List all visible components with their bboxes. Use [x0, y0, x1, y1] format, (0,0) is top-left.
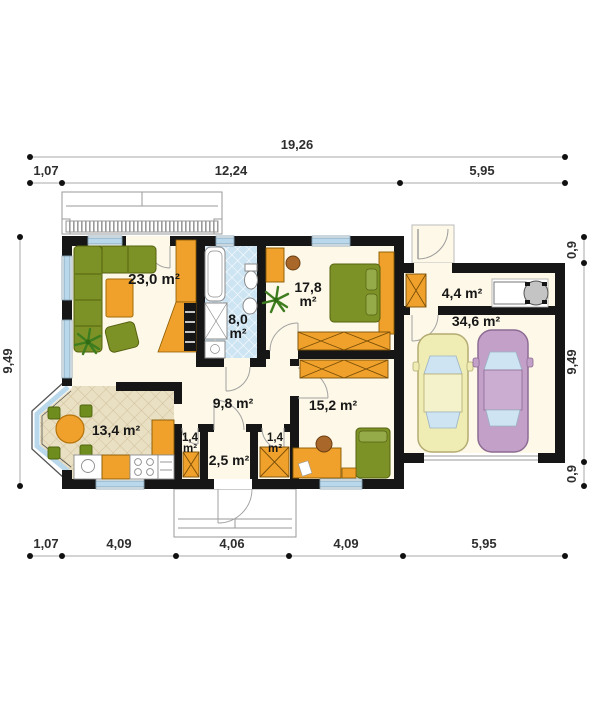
bedroom-headboard	[379, 252, 394, 334]
dim-top-seg-2: 12,24	[215, 163, 248, 178]
dim-top-seg-1: 1,07	[33, 163, 58, 178]
toilet	[245, 264, 258, 289]
car-yellow	[413, 334, 473, 452]
window-living-left-1	[62, 256, 72, 300]
bedroom-desk	[266, 248, 284, 282]
window-room2-bottom	[320, 479, 362, 489]
dim-left-height: 9,49	[0, 348, 15, 373]
dim-bottom-seg-5: 5,95	[471, 536, 496, 551]
label-living-area: 23,0 m²	[128, 271, 180, 288]
dim-right-seg-3: 0,9	[564, 465, 579, 483]
terrace	[62, 192, 222, 234]
bedroom-chair	[286, 256, 300, 270]
label-closet-right-unit: m²	[268, 443, 282, 455]
label-kitchen-area: 13,4 m²	[92, 422, 141, 438]
label-vestibule-area: 2,5 m²	[209, 452, 250, 468]
floor-plan-drawing: 23,0 m² 8,0 m² 17,8 m² 4,4 m² 34,6 m² 9,…	[0, 0, 600, 708]
dim-top-seg-3: 5,95	[469, 163, 494, 178]
floor-plan-page: 23,0 m² 8,0 m² 17,8 m² 4,4 m² 34,6 m² 9,…	[0, 0, 600, 708]
dim-right-seg-2: 9,49	[564, 349, 579, 374]
label-closet-left-unit: m²	[183, 443, 197, 455]
label-bathroom-area-unit: m²	[229, 325, 246, 341]
boiler	[492, 279, 548, 307]
room2-wardrobe	[300, 360, 388, 378]
dining-table	[56, 415, 84, 443]
room2-chair	[316, 436, 332, 452]
bedroom-wardrobe	[298, 332, 390, 350]
dim-top-total: 19,26	[281, 137, 314, 152]
window-bedroom-top	[312, 236, 350, 246]
washer	[205, 341, 225, 358]
utility-exterior-door	[412, 225, 454, 263]
label-hall-area: 9,8 m²	[213, 395, 254, 411]
dim-bottom-seg-4: 4,09	[333, 536, 358, 551]
window-bath-top	[216, 236, 234, 246]
car-purple	[473, 330, 533, 452]
label-utility-area: 4,4 m²	[442, 285, 483, 301]
label-bedroom-area-unit: m²	[299, 293, 316, 309]
entry-porch	[174, 489, 296, 537]
utility-wardrobe	[406, 274, 426, 307]
dim-bottom-seg-3: 4,06	[219, 536, 244, 551]
label-room2-area: 15,2 m²	[309, 397, 358, 413]
dim-right-seg-1: 0,9	[564, 241, 579, 259]
room2-bench	[342, 468, 356, 478]
window-living-top	[88, 236, 122, 246]
window-kitchen-bottom	[96, 479, 144, 489]
window-living-left-2	[62, 320, 72, 378]
dim-bottom-seg-1: 1,07	[33, 536, 58, 551]
label-garage-area: 34,6 m²	[452, 313, 501, 329]
dim-bottom-seg-2: 4,09	[106, 536, 131, 551]
